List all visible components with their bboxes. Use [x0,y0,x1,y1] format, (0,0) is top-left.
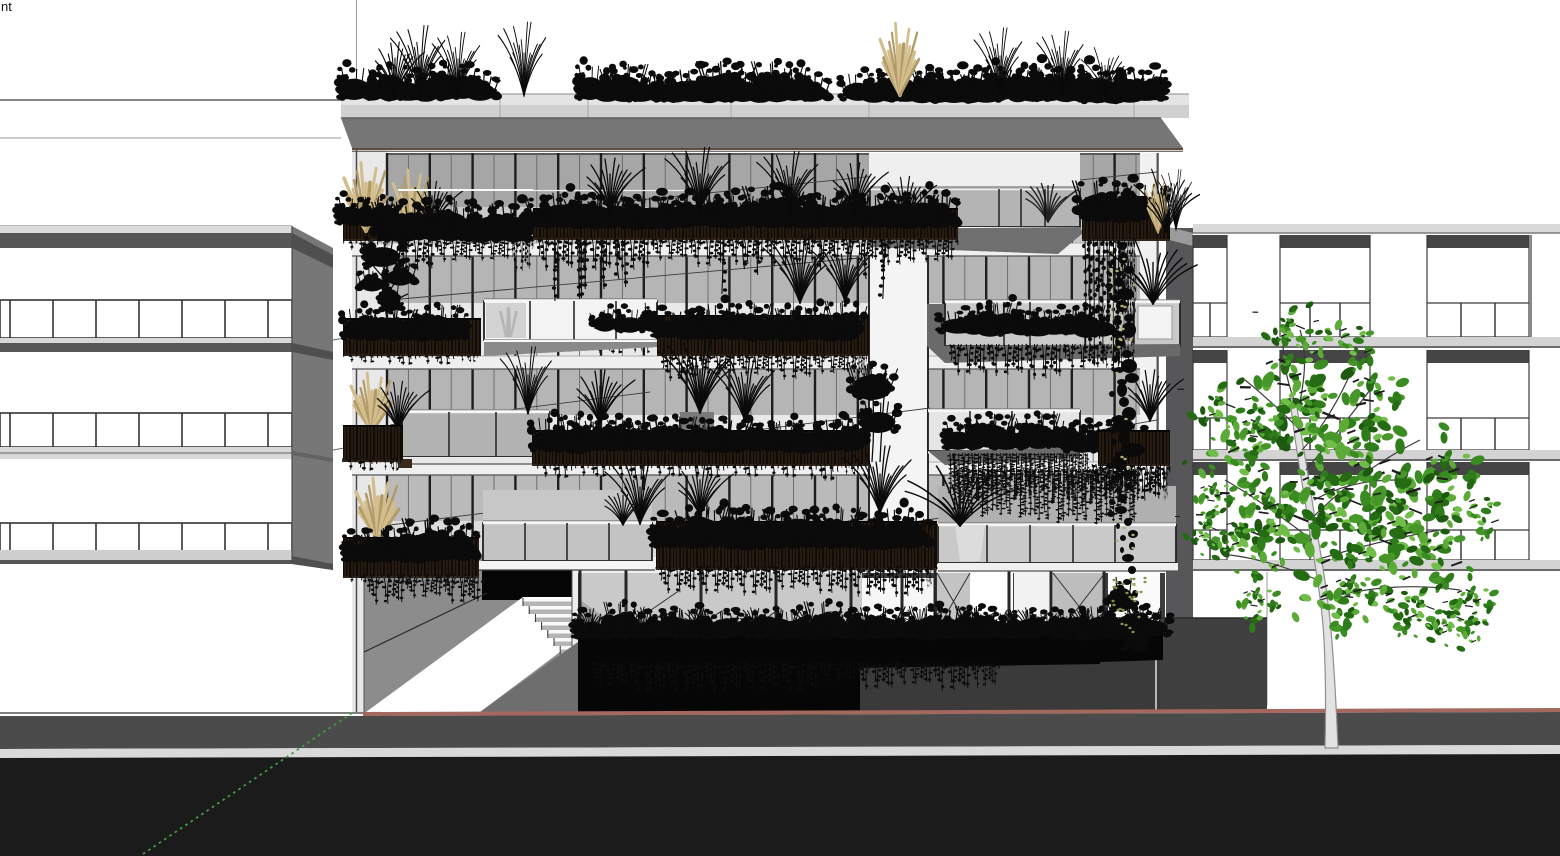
svg-text:nt: nt [1,0,12,14]
